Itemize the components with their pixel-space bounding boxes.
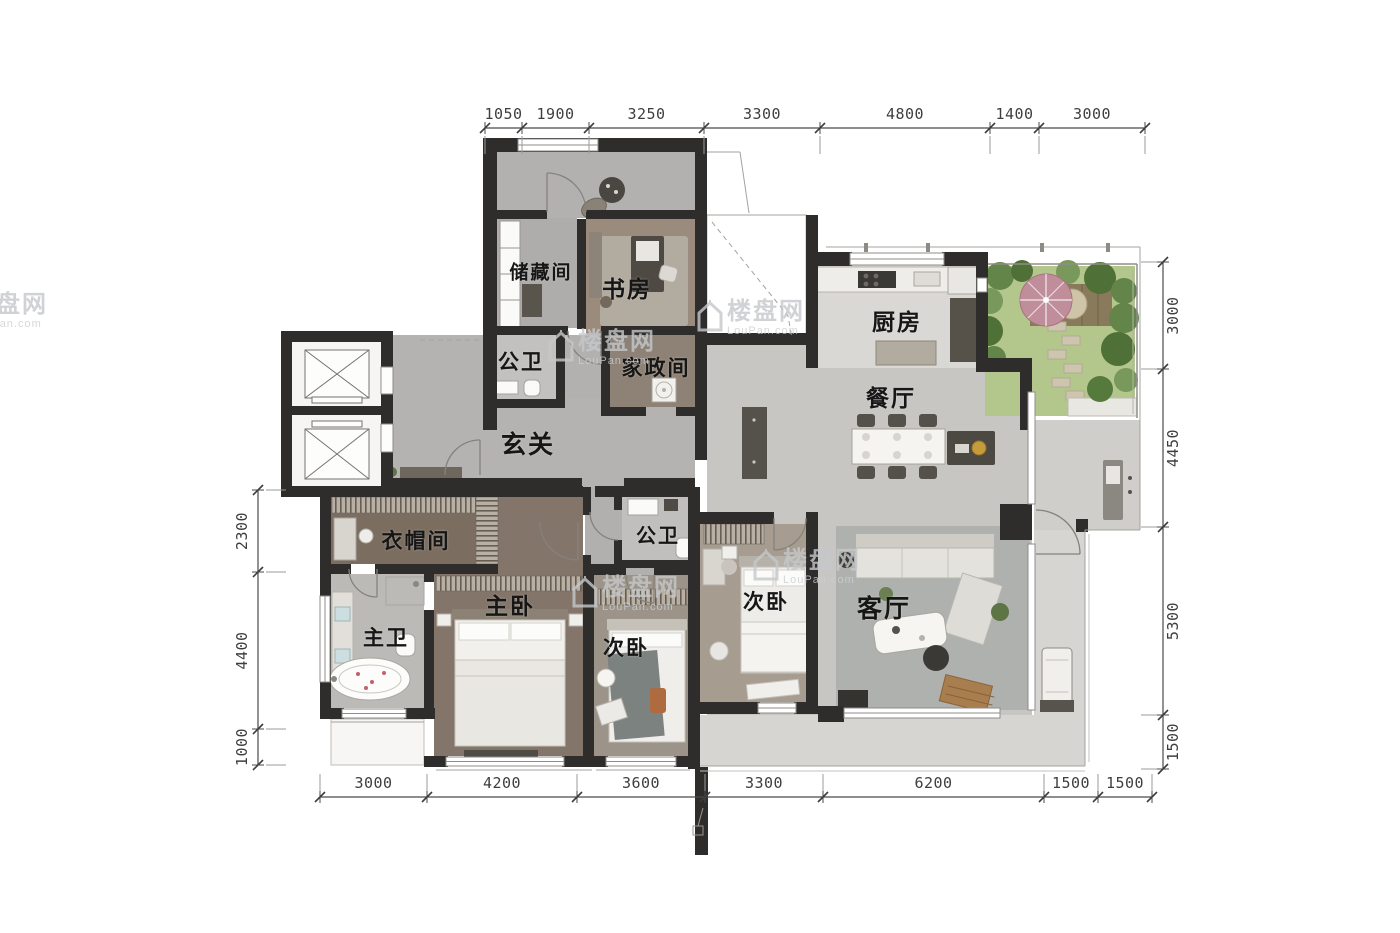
- bathtub: [330, 658, 410, 700]
- balcony-east-floor: [1034, 420, 1140, 530]
- cloak-wardrobe-side: [476, 497, 498, 564]
- dim-label: 3300: [745, 774, 783, 792]
- dim-label: 5300: [1164, 602, 1182, 640]
- dim-label: 3300: [743, 105, 781, 123]
- bedroom3-wardrobe: [704, 524, 764, 544]
- void-room: [707, 215, 806, 335]
- dim-label: 1500: [1106, 774, 1144, 792]
- bedroom2-wardrobe: [598, 589, 688, 605]
- dim-label: 3000: [354, 774, 392, 792]
- bedroom2-furniture: [596, 619, 687, 742]
- toilet: [396, 634, 415, 656]
- sofa: [856, 548, 994, 578]
- ledge-under-bath: [331, 719, 424, 765]
- dim-label: 4400: [233, 631, 251, 669]
- living-furniture: [836, 526, 1030, 716]
- dim-label: 2300: [233, 512, 251, 550]
- dim-label: 3000: [1073, 105, 1111, 123]
- master-wardrobe: [436, 576, 582, 591]
- dim-label: 4200: [483, 774, 521, 792]
- side-table: [923, 645, 949, 671]
- dim-label: 1000: [233, 728, 251, 766]
- bed3-headboard: [739, 556, 809, 567]
- garden-terrace: [973, 260, 1139, 418]
- dim-label: 6200: [914, 774, 952, 792]
- dim-label: 1050: [484, 105, 522, 123]
- dim-label: 3250: [627, 105, 665, 123]
- master-bed: [437, 609, 583, 760]
- balcony-bottom-floor: [700, 715, 1034, 766]
- gold-decor: [972, 441, 986, 455]
- plant: [991, 603, 1009, 621]
- garden-umbrella: [1020, 274, 1072, 326]
- floorplan-canvas: 1050190032503300480014003000300042003600…: [0, 0, 1400, 933]
- dim-label: 3000: [1164, 296, 1182, 334]
- dim-label: 4800: [886, 105, 924, 123]
- study-furniture: [589, 232, 688, 326]
- dining-island: [947, 431, 995, 465]
- dim-label: 1500: [1052, 774, 1090, 792]
- dim-label: 1500: [1164, 723, 1182, 761]
- floorplan-svg: 1050190032503300480014003000300042003600…: [0, 0, 1400, 933]
- cloak-wardrobe-top: [332, 497, 498, 513]
- sideboard: [742, 407, 767, 479]
- dim-label: 1400: [995, 105, 1033, 123]
- balcony-lounge-chair: [1040, 648, 1074, 712]
- master-upper-floor: [498, 490, 583, 575]
- dim-label: 1900: [536, 105, 574, 123]
- dim-label: 3600: [622, 774, 660, 792]
- dim-label: 4450: [1164, 429, 1182, 467]
